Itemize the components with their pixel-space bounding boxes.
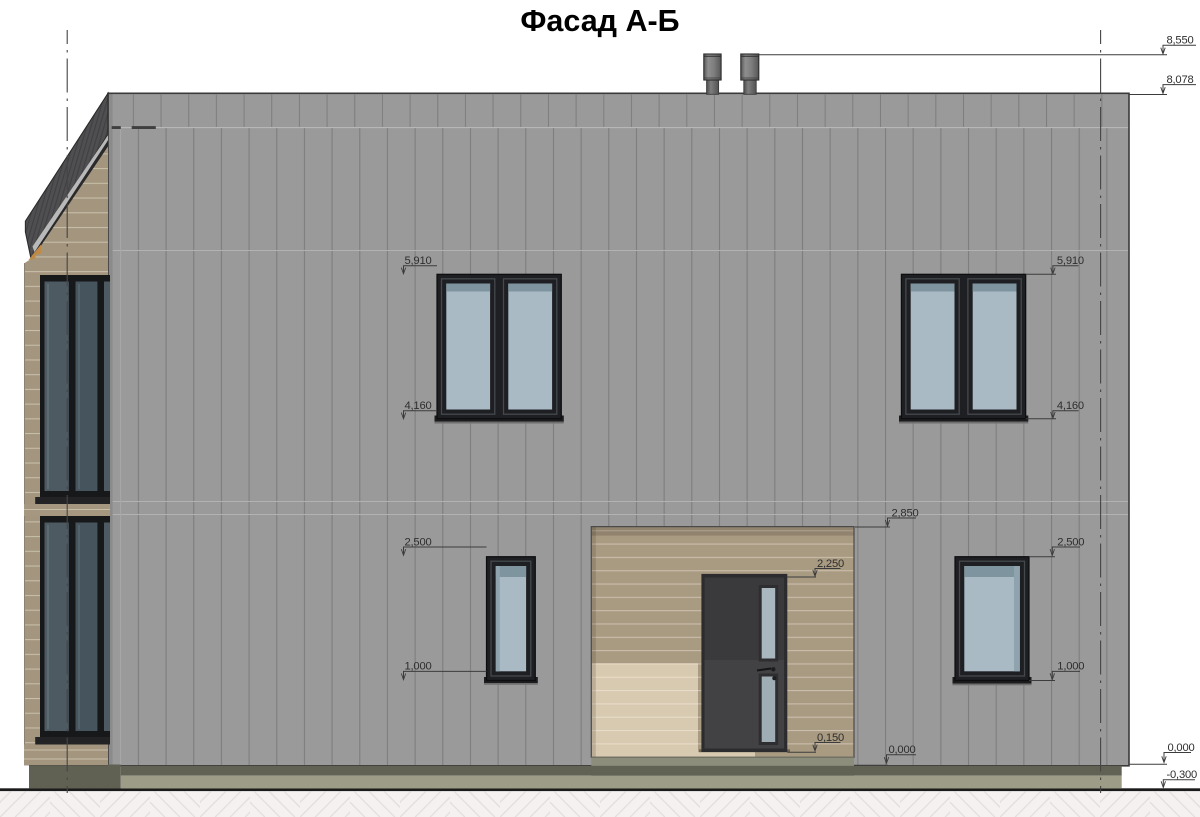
svg-text:8,550: 8,550 xyxy=(1167,35,1194,47)
svg-text:5,910: 5,910 xyxy=(405,255,432,267)
svg-text:0,000: 0,000 xyxy=(889,744,916,756)
svg-text:0,000: 0,000 xyxy=(1168,742,1195,754)
svg-text:2,850: 2,850 xyxy=(892,507,919,519)
svg-text:4,160: 4,160 xyxy=(405,400,432,412)
svg-text:2,250: 2,250 xyxy=(817,558,844,570)
svg-text:8,078: 8,078 xyxy=(1167,74,1194,86)
svg-text:0,150: 0,150 xyxy=(817,732,844,744)
svg-text:Фасад А-Б: Фасад А-Б xyxy=(520,4,679,38)
svg-text:2,500: 2,500 xyxy=(405,536,432,548)
svg-text:1,000: 1,000 xyxy=(405,661,432,673)
svg-text:4,160: 4,160 xyxy=(1057,400,1084,412)
svg-text:-0,300: -0,300 xyxy=(1167,769,1198,781)
svg-text:5,910: 5,910 xyxy=(1057,255,1084,267)
svg-text:2,500: 2,500 xyxy=(1057,536,1084,548)
svg-text:1,000: 1,000 xyxy=(1057,661,1084,673)
